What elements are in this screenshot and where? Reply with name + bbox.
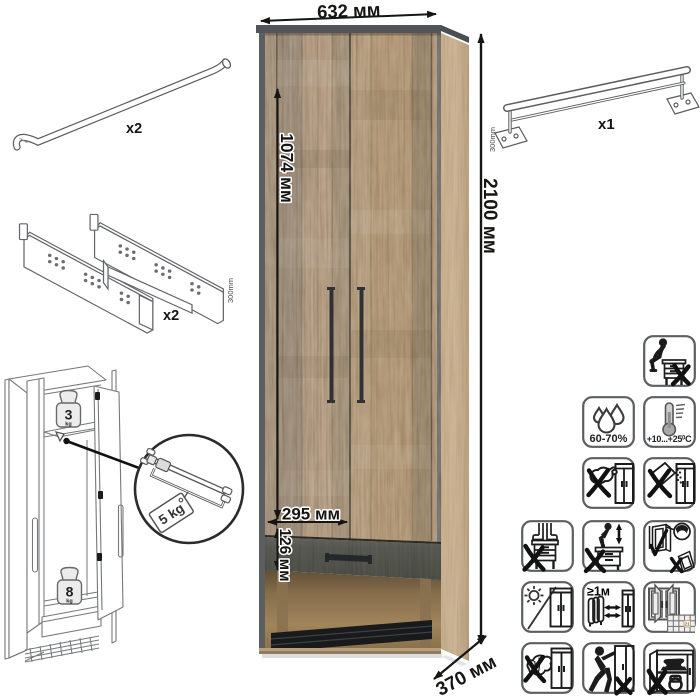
svg-text:2100 мм: 2100 мм <box>479 178 500 254</box>
svg-text:60-70%: 60-70% <box>590 433 628 445</box>
svg-text:kg: kg <box>66 599 72 605</box>
svg-text:kg: kg <box>65 422 71 428</box>
svg-text:x2: x2 <box>126 121 142 137</box>
svg-text:3: 3 <box>65 407 73 423</box>
svg-text:21: 21 <box>685 622 691 627</box>
svg-text:x2: x2 <box>163 308 179 324</box>
svg-text:300mm: 300mm <box>226 278 235 303</box>
svg-text:8: 8 <box>66 584 74 600</box>
svg-text:1074 мм: 1074 мм <box>277 133 297 203</box>
svg-text:x1: x1 <box>598 116 615 133</box>
svg-text:295 мм: 295 мм <box>282 505 340 524</box>
svg-text:300mm: 300mm <box>488 127 497 152</box>
svg-text:126 мм: 126 мм <box>276 528 293 581</box>
svg-text:+10...+250С: +10...+250С <box>647 434 692 444</box>
svg-text:632 мм: 632 мм <box>317 0 381 22</box>
